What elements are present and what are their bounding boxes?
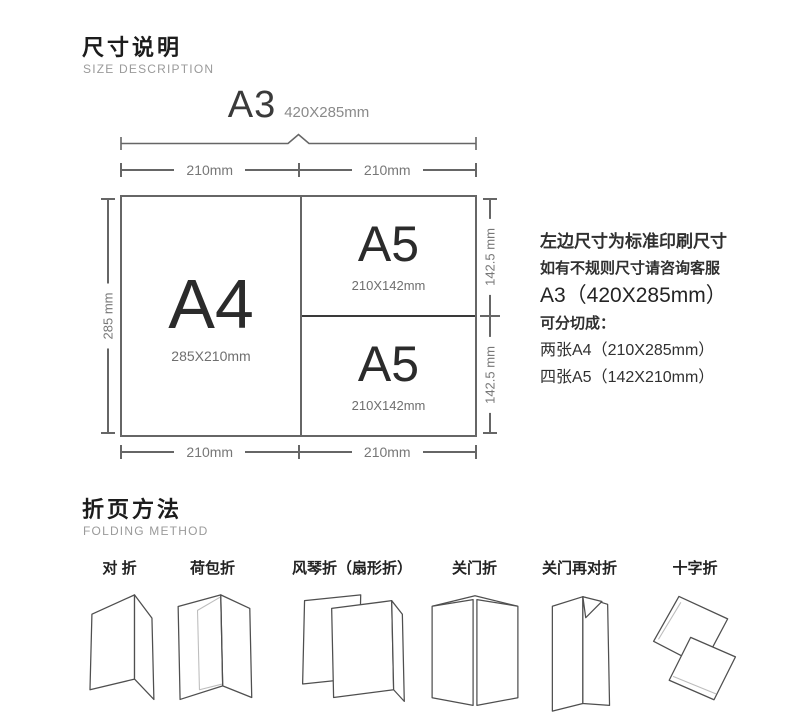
half-fold-icon: [81, 591, 159, 713]
fold-label: 十字折: [630, 560, 760, 578]
note-line: 左边尺寸为标准印刷尺寸: [540, 232, 792, 252]
fold-label: 风琴折（扇形折）: [272, 560, 432, 578]
fold-method-gate: 关门折: [412, 560, 537, 713]
sheet-diagram: A4 285X210mm A5 210X142mm A5 210X142mm: [120, 195, 477, 437]
dim-label-142mm-bottom: 142.5 mm: [483, 337, 498, 413]
gate-fold-icon: [424, 591, 526, 713]
dim-tick: [101, 432, 115, 434]
a3-label: A3: [228, 84, 276, 127]
a5-bottom-label: A5: [358, 339, 419, 389]
folding-section-title: 折页方法: [82, 492, 182, 524]
top-dimension-row: 210mm 210mm: [120, 163, 477, 177]
dim-line: [122, 169, 174, 171]
a4-cell-dims: 285X210mm: [171, 348, 250, 364]
a5-top-label: A5: [358, 219, 419, 269]
dim-label-285mm: 285 mm: [101, 284, 116, 349]
dim-label: 210mm: [174, 162, 245, 178]
dim-line: [245, 169, 297, 171]
fold-label: 关门再对折: [537, 560, 622, 578]
notes-block: 左边尺寸为标准印刷尺寸 如有不规则尺寸请咨询客服 A3（420X285mm） 可…: [540, 232, 792, 389]
fold-label: 荷包折: [160, 560, 265, 578]
note-line: 如有不规则尺寸请咨询客服: [540, 259, 792, 279]
fold-method-gate-half: 关门再对折: [537, 560, 622, 713]
dim-line: [423, 169, 475, 171]
bottom-dimension-row: 210mm 210mm: [120, 445, 477, 459]
left-dimension-column: 285 mm: [101, 198, 115, 434]
dim-line: [245, 451, 297, 453]
dim-label-142mm-top: 142.5 mm: [483, 219, 498, 295]
a3-width-bracket: [120, 133, 477, 151]
folding-section-subtitle: FOLDING METHOD: [83, 524, 208, 538]
dim-tick: [475, 163, 477, 177]
a3-heading: A3 420X285mm: [120, 84, 477, 127]
dim-label: 210mm: [352, 162, 423, 178]
dim-tick: [483, 432, 497, 434]
a3-dimensions: 420X285mm: [284, 104, 369, 121]
right-dimension-column: 142.5 mm 142.5 mm: [483, 198, 497, 434]
roll-fold-icon: [171, 591, 255, 713]
a5-top-dims: 210X142mm: [352, 278, 426, 293]
size-section-title: 尺寸说明: [82, 30, 182, 62]
dim-label: 210mm: [352, 444, 423, 460]
fold-label: 关门折: [412, 560, 537, 578]
fold-method-roll: 荷包折: [160, 560, 265, 713]
cross-fold-icon: [638, 591, 753, 713]
dim-line: [300, 451, 352, 453]
a5-bottom-cell: A5 210X142mm: [302, 317, 475, 435]
a5-bottom-dims: 210X142mm: [352, 398, 426, 413]
size-section-subtitle: SIZE DESCRIPTION: [83, 62, 214, 76]
a4-cell: A4 285X210mm: [122, 197, 300, 435]
accordion-fold-icon: [298, 591, 406, 713]
dim-tick-middle: [480, 315, 500, 317]
note-line-a5: 四张A5（142X210mm）: [540, 367, 792, 389]
note-line-a4: 两张A4（210X285mm）: [540, 340, 792, 362]
a5-top-cell: A5 210X142mm: [302, 197, 475, 315]
note-line: 可分切成：: [540, 315, 792, 333]
note-line-a3: A3（420X285mm）: [540, 284, 792, 308]
fold-method-cross: 十字折: [630, 560, 760, 713]
dim-tick: [475, 445, 477, 459]
dim-line: [300, 169, 352, 171]
a4-cell-label: A4: [168, 269, 254, 339]
fold-method-accordion: 风琴折（扇形折）: [272, 560, 432, 713]
dim-line: [122, 451, 174, 453]
dim-label: 210mm: [174, 444, 245, 460]
gate-half-fold-icon: [543, 591, 617, 713]
dim-line: [423, 451, 475, 453]
